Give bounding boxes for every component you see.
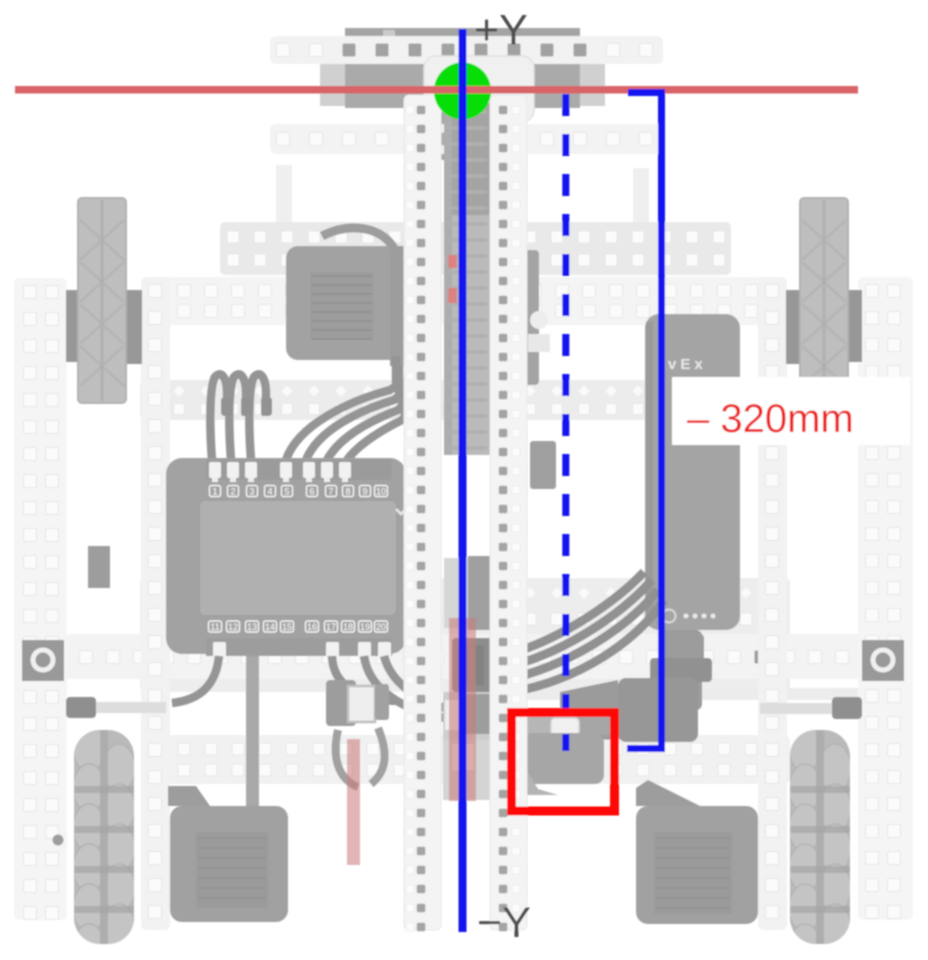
svg-text:10: 10 xyxy=(376,487,386,497)
svg-text:– 320mm: – 320mm xyxy=(687,397,854,441)
svg-text:5: 5 xyxy=(284,487,289,497)
svg-text:7: 7 xyxy=(328,487,333,497)
svg-text:8: 8 xyxy=(345,487,350,497)
svg-text:15: 15 xyxy=(282,622,292,632)
svg-text:vEx: vEx xyxy=(668,356,707,373)
svg-text:19: 19 xyxy=(360,622,370,632)
svg-text:2: 2 xyxy=(230,487,235,497)
svg-text:13: 13 xyxy=(247,622,257,632)
svg-text:4: 4 xyxy=(267,487,272,497)
svg-text:11: 11 xyxy=(210,622,219,632)
svg-text:1: 1 xyxy=(212,487,217,497)
svg-text:9: 9 xyxy=(362,487,367,497)
svg-text:−Y: −Y xyxy=(477,899,531,947)
svg-text:14: 14 xyxy=(265,622,275,632)
svg-text:3: 3 xyxy=(249,487,254,497)
svg-text:12: 12 xyxy=(228,622,238,632)
svg-text:16: 16 xyxy=(307,622,317,632)
svg-text:20: 20 xyxy=(376,622,386,632)
svg-text:6: 6 xyxy=(309,487,314,497)
svg-text:+Y: +Y xyxy=(474,7,528,55)
svg-text:18: 18 xyxy=(343,622,353,632)
svg-text:17: 17 xyxy=(326,622,336,632)
